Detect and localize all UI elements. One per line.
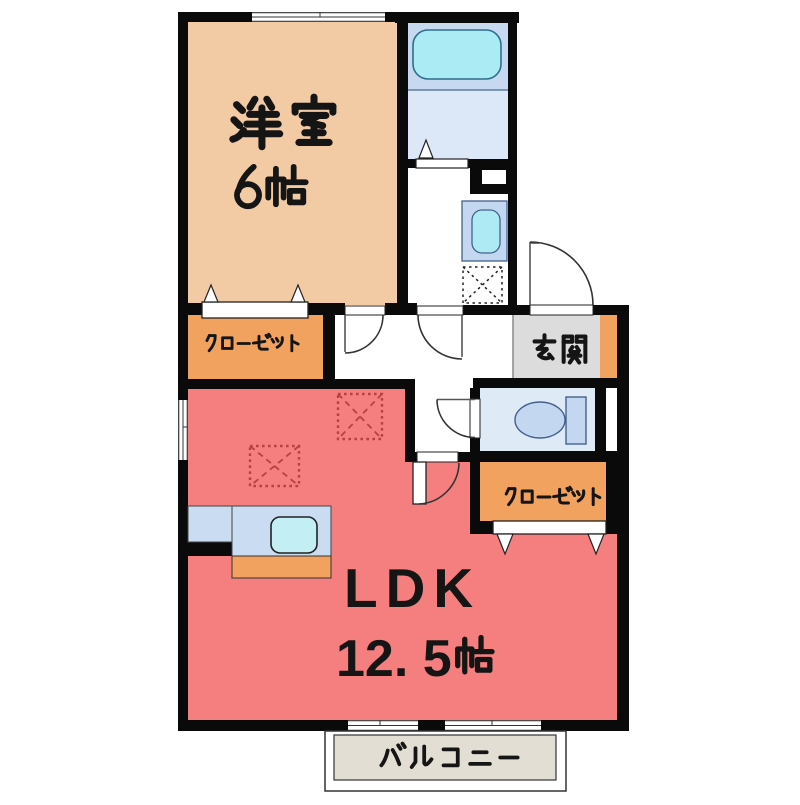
svg-text:12. 5: 12. 5 — [336, 630, 452, 688]
svg-text:LDK: LDK — [344, 557, 481, 619]
